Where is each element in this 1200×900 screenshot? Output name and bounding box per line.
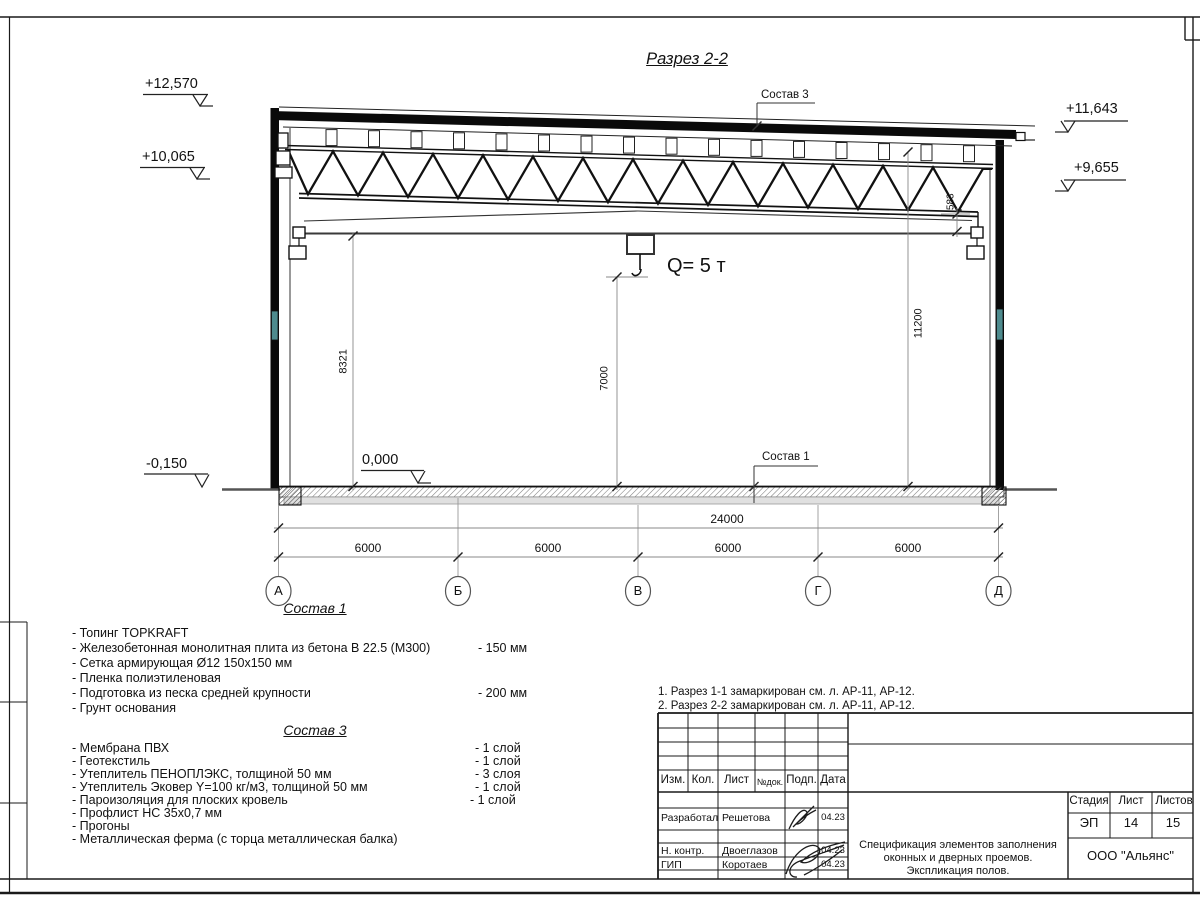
tb-col-izm: Изм. xyxy=(658,774,688,787)
tb-role-gip: ГИП xyxy=(661,859,682,871)
floor-spec-item: - Железобетонная монолитная плита из бет… xyxy=(72,641,430,655)
elevation-right-top: +11,643 xyxy=(1066,101,1118,118)
tb-stage-value: ЭП xyxy=(1068,816,1110,831)
dim-total: 24000 xyxy=(697,513,757,527)
tb-name-developer: Решетова xyxy=(722,812,770,824)
left-margin-boxes xyxy=(0,622,27,879)
tb-name-ncontrol: Двоеглазов xyxy=(722,845,778,857)
elevation-floor-zero: 0,000 xyxy=(362,452,398,469)
dim-bay-1: 6000 xyxy=(338,542,398,556)
floor-slab xyxy=(222,487,1057,506)
floor-spec-item: - Сетка армирующая Ø12 150х150 мм xyxy=(72,656,292,670)
axis-bubble-d: Д xyxy=(986,584,1012,599)
dim-height-left: 8321 xyxy=(338,331,351,391)
dim-height-mid: 7000 xyxy=(599,348,612,408)
axis-bubble-a: А xyxy=(266,584,292,599)
section-drawing-geometry xyxy=(0,0,1200,900)
tb-doc-title-line3: Экспликация полов. xyxy=(850,865,1066,878)
note-line-2: 2. Разрез 2-2 замаркирован см. л. АР-11,… xyxy=(658,700,915,713)
floor-spec-item: - Грунт основания xyxy=(72,701,176,715)
tb-stage-label: Стадия xyxy=(1068,795,1110,808)
floor-spec-value: - 200 мм xyxy=(478,686,527,700)
callout-floor-composition: Состав 1 xyxy=(762,451,810,464)
tb-company: ООО "Альянс" xyxy=(1068,849,1193,864)
tb-sheets-value: 15 xyxy=(1152,816,1194,831)
roof-spec-heading: Состав 3 xyxy=(265,722,365,738)
dim-bay-3: 6000 xyxy=(698,542,758,556)
floor-spec-heading: Состав 1 xyxy=(265,600,365,616)
tb-col-data: Дата xyxy=(818,774,848,787)
tb-doc-title-line2: оконных и дверных проемов. xyxy=(850,852,1066,865)
tb-col-kol: Кол. xyxy=(688,774,718,787)
dimension-lines xyxy=(274,152,1003,576)
elevation-ground: -0,150 xyxy=(146,456,187,473)
floor-spec-value: - 150 мм xyxy=(478,641,527,655)
floor-spec-item: - Пленка полиэтиленовая xyxy=(72,671,221,685)
foundation-right xyxy=(982,487,1006,505)
callout-roof-composition: Состав 3 xyxy=(761,89,809,102)
elevation-left-top: +12,570 xyxy=(145,76,198,93)
note-line-1: 1. Разрез 1-1 замаркирован см. л. АР-11,… xyxy=(658,686,915,699)
axis-bubble-g: Г xyxy=(805,584,831,599)
tb-role-developer: Разработал xyxy=(661,812,718,824)
axis-bubble-b: Б xyxy=(445,584,471,599)
tb-sheets-label: Листов xyxy=(1152,795,1196,808)
tb-sheet-value: 14 xyxy=(1110,816,1152,831)
foundation-left xyxy=(279,487,301,505)
axis-bubble-v: В xyxy=(625,584,651,599)
tb-col-podp: Подп. xyxy=(785,774,818,787)
dim-bay-2: 6000 xyxy=(518,542,578,556)
tb-role-ncontrol: Н. контр. xyxy=(661,845,704,857)
dim-bay-4: 6000 xyxy=(878,542,938,556)
tb-name-gip: Коротаев xyxy=(722,859,767,871)
drawing-sheet: Разрез 2-2 +12,570 +10,065 +11,643 +9,65… xyxy=(0,0,1200,900)
tb-date-developer: 04.23 xyxy=(818,813,848,824)
wall-inset-right xyxy=(997,309,1004,340)
roof-spec-item: - Металлическая ферма (с торца металличе… xyxy=(72,832,398,846)
tb-doc-title-line1: Спецификация элементов заполнения xyxy=(850,839,1066,852)
roof-spec-value: - 1 слой xyxy=(470,793,516,807)
crane-capacity-label: Q= 5 т xyxy=(667,255,726,278)
dim-truss-end: 583 xyxy=(945,182,957,222)
elevation-left-mid: +10,065 xyxy=(142,149,195,166)
dim-height-right: 11200 xyxy=(913,293,926,353)
elevation-right-mid: +9,655 xyxy=(1074,160,1119,177)
floor-spec-item: - Топинг TOPKRAFT xyxy=(72,626,188,640)
floor-spec-item: - Подготовка из песка средней крупности xyxy=(72,686,311,700)
crane-trolley xyxy=(606,235,654,277)
roof-assembly xyxy=(271,107,1035,231)
tb-date-gip: 04.23 xyxy=(818,860,848,871)
left-bearing-detail xyxy=(275,133,292,178)
wall-inset-left xyxy=(272,311,279,340)
tb-date-ncontrol: 04.23 xyxy=(818,846,848,857)
tb-sheet-label: Лист xyxy=(1110,795,1152,808)
tb-col-ndoc: №док. xyxy=(755,777,785,787)
drawing-title: Разрез 2-2 xyxy=(597,50,777,69)
tb-col-list: Лист xyxy=(718,774,755,787)
